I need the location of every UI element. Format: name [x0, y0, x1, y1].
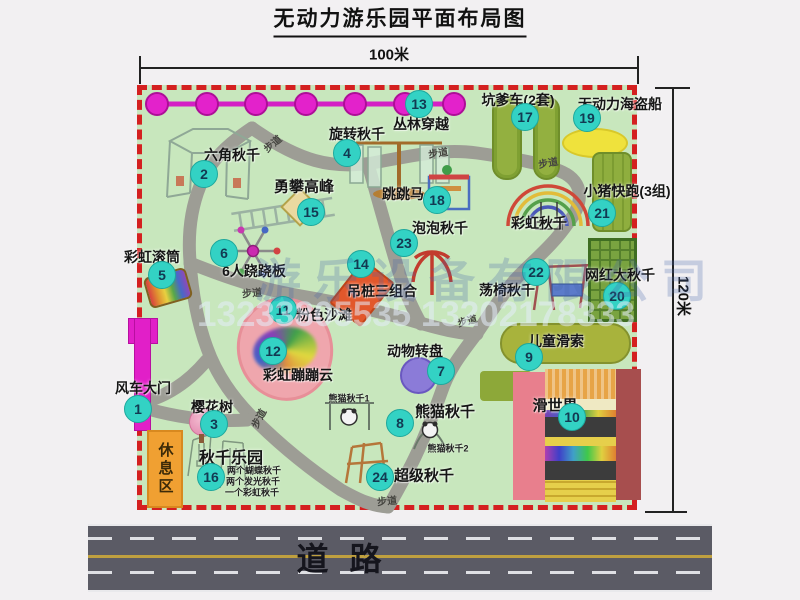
walkway-label-7: 步道	[376, 492, 397, 509]
badge-8: 8	[386, 409, 414, 437]
label-pink-beach: 粉色沙滩	[296, 305, 352, 325]
badge-2: 2	[190, 160, 218, 188]
slide-world-slides	[545, 369, 616, 502]
walkway-label-2: 步道	[427, 143, 449, 161]
label-panda-swing-1: 熊猫秋千1	[328, 392, 369, 405]
badge-24: 24	[366, 463, 394, 491]
road-center-line	[88, 555, 712, 558]
badge-7: 7	[427, 357, 455, 385]
label-rainbow-bounce-cloud: 彩虹蹦蹦云	[263, 365, 333, 385]
top-dimension-tick-right	[637, 56, 639, 84]
badge-1: 1	[124, 395, 152, 423]
road	[88, 524, 712, 592]
badge-3: 3	[200, 410, 228, 438]
top-dimension-line	[140, 67, 638, 69]
badge-14: 14	[347, 250, 375, 278]
badge-18: 18	[423, 186, 451, 214]
badge-22: 22	[522, 258, 550, 286]
walkway-label-4: 步道	[241, 284, 262, 301]
park-plan-canvas: 无动力游乐园平面布局图 100米 120米	[0, 0, 800, 600]
badge-11: 11	[269, 296, 297, 324]
label-hanging-pile-combo: 吊桩三组合	[347, 281, 417, 301]
slide-world-complex	[513, 369, 641, 502]
badge-17: 17	[511, 103, 539, 131]
badge-6: 6	[210, 239, 238, 267]
badge-5: 5	[148, 261, 176, 289]
badge-12: 12	[259, 337, 287, 365]
badge-16: 16	[197, 463, 225, 491]
label-pig-run: 小猪快跑(3组)	[583, 181, 670, 201]
slide-world-red-tower	[616, 369, 641, 500]
slide-world-pink-tower	[513, 372, 545, 500]
label-panda-swing: 熊猫秋千	[415, 401, 475, 422]
width-dimension-label: 100米	[369, 44, 409, 65]
height-dimension-label: 120米	[674, 276, 695, 316]
label-jumping-horse: 跳跳马	[382, 184, 424, 204]
badge-9: 9	[515, 343, 543, 371]
badge-23: 23	[390, 229, 418, 257]
label-rainbow-swing: 彩虹秋千	[511, 213, 567, 233]
right-dimension-tick-top	[655, 87, 690, 89]
swing-paradise-detail-3: 一个彩虹秋千	[225, 486, 279, 499]
badge-4: 4	[333, 139, 361, 167]
top-dimension-tick-left	[139, 56, 141, 84]
page-title: 无动力游乐园平面布局图	[274, 3, 527, 38]
rest-area: 休息区	[147, 430, 183, 508]
right-dimension-tick-bottom	[645, 511, 687, 513]
badge-10: 10	[558, 403, 586, 431]
badge-19: 19	[573, 104, 601, 132]
badge-20: 20	[603, 282, 631, 310]
road-lane-dash-bottom	[88, 571, 712, 574]
badge-21: 21	[588, 199, 616, 227]
label-panda-swing-2: 熊猫秋千2	[427, 442, 468, 455]
label-climbing-peak: 勇攀高峰	[274, 176, 334, 197]
road-lane-dash-top	[88, 537, 712, 540]
label-super-swing: 超级秋千	[394, 465, 454, 486]
badge-15: 15	[297, 198, 325, 226]
badge-13: 13	[405, 90, 433, 118]
rest-area-label: 休息区	[155, 442, 176, 496]
cherry-tree-trunk	[199, 434, 204, 443]
label-bubble-swing: 泡泡秋千	[412, 218, 468, 238]
road-label: 道 路	[297, 534, 388, 580]
